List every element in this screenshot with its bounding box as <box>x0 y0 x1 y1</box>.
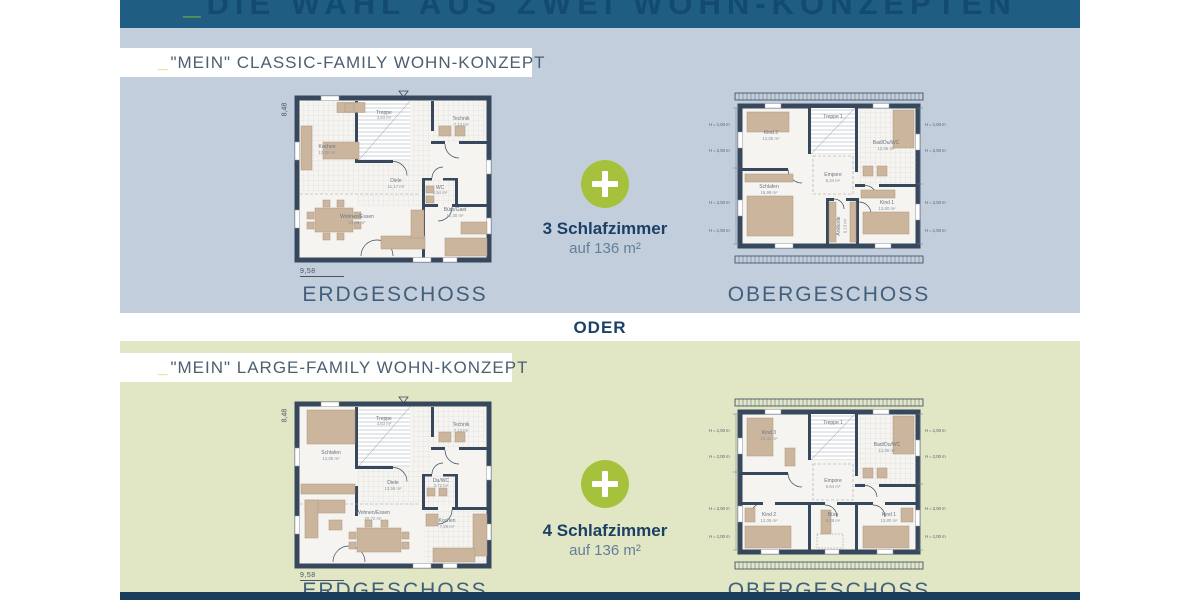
svg-text:13,59 m²: 13,59 m² <box>385 486 403 491</box>
svg-text:H = 2,00 m: H = 2,00 m <box>709 200 730 205</box>
svg-text:H = 2,00 m: H = 2,00 m <box>925 454 946 459</box>
heading-underscore: _ <box>158 53 168 73</box>
svg-text:H = 1,00 m: H = 1,00 m <box>925 122 946 127</box>
svg-text:H = 1,00 m: H = 1,00 m <box>925 534 946 539</box>
svg-text:10,41 m²: 10,41 m² <box>761 436 779 441</box>
svg-text:16,99 m²: 16,99 m² <box>761 190 779 195</box>
svg-text:3,72 m²: 3,72 m² <box>434 483 449 488</box>
svg-text:9,13 m²: 9,13 m² <box>843 218 848 233</box>
svg-text:H = 2,00 m: H = 2,00 m <box>709 454 730 459</box>
benefit-title-large: 4 Schlafzimmer <box>495 521 715 541</box>
svg-text:7,13 m²: 7,13 m² <box>454 122 469 127</box>
svg-text:12,05 m²: 12,05 m² <box>763 136 781 141</box>
svg-text:20,72 m²: 20,72 m² <box>365 516 383 521</box>
svg-text:12,06 m²: 12,06 m² <box>878 146 896 151</box>
section-large-heading: _ "MEIN" LARGE-FAMILY WOHN-KONZEPT <box>120 353 512 382</box>
svg-text:12,06 m²: 12,06 m² <box>879 448 897 453</box>
svg-text:H = 1,00 m: H = 1,00 m <box>709 228 730 233</box>
benefit-title-classic: 3 Schlafzimmer <box>495 219 715 239</box>
svg-text:H = 2,00 m: H = 2,00 m <box>925 200 946 205</box>
floor-label-classic-og: OBERGESCHOSS <box>719 283 939 307</box>
svg-text:7,13 m²: 7,13 m² <box>454 428 469 433</box>
benefit-sub-large: auf 136 m² <box>495 542 715 559</box>
plus-icon <box>581 460 629 508</box>
section-classic-heading: _ "MEIN" CLASSIC-FAMILY WOHN-KONZEPT <box>120 48 532 77</box>
svg-text:H = 1,00 m: H = 1,00 m <box>925 428 946 433</box>
room-label-ankleide: Ankleide <box>836 216 842 235</box>
svg-text:H = 2,00 m: H = 2,00 m <box>709 148 730 153</box>
floorplan-large-obergeschoss: Kind 3 10,41 m² Treppe 1 Bad/Du/WC 12,06… <box>705 398 950 570</box>
svg-text:7,29 m²: 7,29 m² <box>440 524 455 529</box>
floorplan-large-erdgeschoss: Schlafen 12,06 m² Treppe 3,83 m² Technik… <box>293 396 497 574</box>
benefit-sub-classic: auf 136 m² <box>495 240 715 257</box>
room-label-treppe1: Treppe 1 <box>823 114 843 120</box>
svg-text:3,83 m²: 3,83 m² <box>377 115 392 120</box>
svg-text:11,17 m²: 11,17 m² <box>388 184 405 189</box>
top-banner: _DIE WAHL AUS ZWEI WOHN-KONZEPTEN <box>120 0 1080 28</box>
svg-text:12,06 m²: 12,06 m² <box>323 456 341 461</box>
heading-text: "MEIN" CLASSIC-FAMILY WOHN-KONZEPT <box>170 53 545 73</box>
svg-text:10,30 m²: 10,30 m² <box>447 213 465 218</box>
dim-height-large-eg: 8,48 <box>281 409 288 423</box>
bottom-bar <box>120 592 1080 600</box>
floorplan-classic-obergeschoss: Kind 2 12,05 m² Treppe 1 Bad/Du/WC 12,06… <box>705 92 950 264</box>
banner-title-text: DIE WAHL AUS ZWEI WOHN-KONZEPTEN <box>206 0 1016 21</box>
svg-text:12,06 m²: 12,06 m² <box>319 150 337 155</box>
svg-text:H = 1,00 m: H = 1,00 m <box>709 534 730 539</box>
svg-text:H = 2,00 m: H = 2,00 m <box>709 506 730 511</box>
svg-text:5,34 m²: 5,34 m² <box>826 178 841 183</box>
banner-title: _DIE WAHL AUS ZWEI WOHN-KONZEPTEN <box>120 0 1080 22</box>
svg-text:H = 1,00 m: H = 1,00 m <box>709 122 730 127</box>
svg-text:3,83 m²: 3,83 m² <box>377 421 392 426</box>
svg-text:21,09 m²: 21,09 m² <box>349 220 367 225</box>
heading-underscore: _ <box>158 358 168 378</box>
banner-underscore: _ <box>183 0 206 21</box>
svg-text:8,28 m²: 8,28 m² <box>826 518 841 523</box>
dim-height-classic-eg: 8,48 <box>281 103 288 117</box>
svg-text:12,05 m²: 12,05 m² <box>761 518 779 523</box>
svg-text:H = 1,00 m: H = 1,00 m <box>925 228 946 233</box>
room-label-treppe1: Treppe 1 <box>823 420 843 426</box>
svg-text:H = 2,00 m: H = 2,00 m <box>925 148 946 153</box>
dim-width-classic-eg: 9,58 <box>300 268 344 277</box>
divider-oder: ODER <box>120 318 1080 338</box>
svg-text:H = 1,00 m: H = 1,00 m <box>709 428 730 433</box>
svg-text:6,94 m²: 6,94 m² <box>826 484 841 489</box>
plus-icon <box>581 160 629 208</box>
svg-text:13,80 m²: 13,80 m² <box>879 206 897 211</box>
floorplan-classic-erdgeschoss: Kochen 12,06 m² Treppe 3,83 m² Technik 7… <box>293 90 497 268</box>
heading-text: "MEIN" LARGE-FAMILY WOHN-KONZEPT <box>170 358 528 378</box>
svg-text:13,80 m²: 13,80 m² <box>881 518 899 523</box>
svg-text:H = 2,00 m: H = 2,00 m <box>925 506 946 511</box>
brochure-page: _DIE WAHL AUS ZWEI WOHN-KONZEPTEN _ "MEI… <box>0 0 1200 600</box>
floor-label-classic-eg: ERDGESCHOSS <box>293 283 497 307</box>
svg-text:1,54 m²: 1,54 m² <box>433 190 448 195</box>
